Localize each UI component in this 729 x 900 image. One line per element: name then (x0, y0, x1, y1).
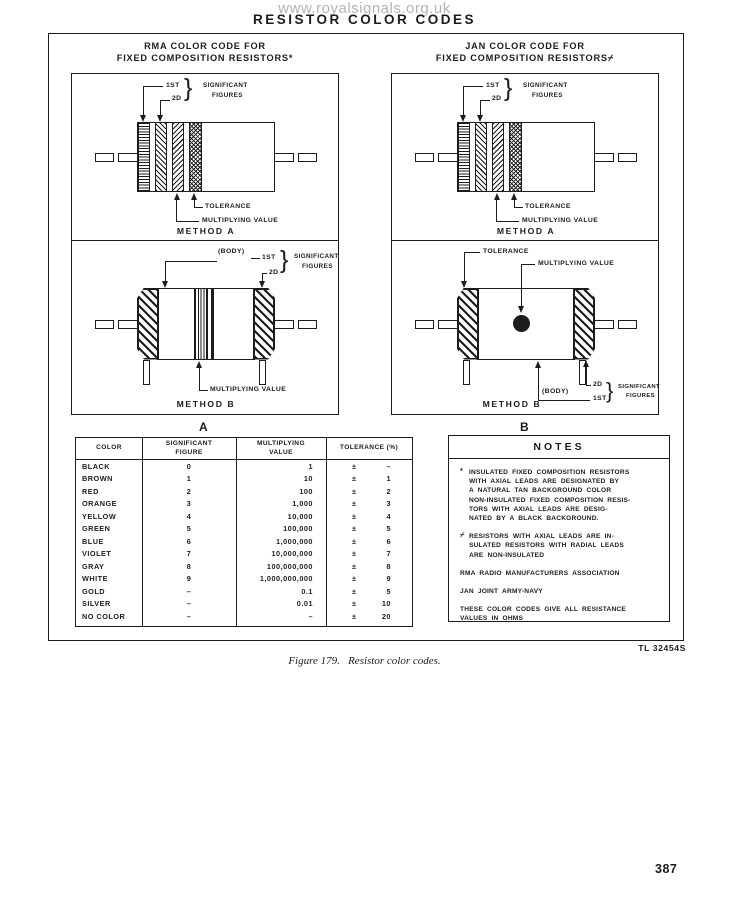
plus-minus-sign: ± (352, 525, 357, 532)
tolerance-value: 8 (380, 563, 391, 570)
cell-multiplier: 0.01 (236, 600, 326, 607)
table-row: VIOLET710,000,000±7 (76, 550, 412, 557)
lead-wire (298, 320, 317, 329)
label-multiplying-value: MULTIPLYING VALUE (538, 261, 614, 268)
cell-figure: 1 (142, 475, 236, 482)
note-line: RESISTORS WITH AXIAL LEADS ARE IN- (469, 532, 663, 541)
lead-wire (274, 153, 294, 162)
plus-minus-sign: ± (352, 563, 357, 570)
cell-figure: – (142, 588, 236, 595)
brace-glyph: } (606, 380, 613, 402)
jan-panel-title: JAN COLOR CODE FOR FIXED COMPOSITION RES… (391, 40, 659, 64)
cell-multiplier: 1,000,000 (236, 538, 326, 545)
arrowhead (460, 115, 466, 122)
label-figures: FIGURES (302, 264, 333, 270)
cell-tolerance: ±5 (326, 525, 412, 532)
lead-wire (438, 320, 458, 329)
leader-line (463, 86, 464, 115)
cap-hatch (575, 290, 593, 358)
method-a-label: METHOD A (456, 227, 596, 236)
tolerance-value: – (380, 463, 391, 470)
cell-figure: 3 (142, 500, 236, 507)
label-tolerance: TOLERANCE (205, 204, 251, 211)
label-significant: SIGNIFICANT (294, 254, 339, 260)
cell-color: GRAY (76, 563, 142, 570)
leader-line (480, 100, 490, 101)
table-row: SILVER–0.01±10 (76, 600, 412, 607)
figure-caption: Figure 179. Resistor color codes. (0, 655, 729, 667)
cell-multiplier: 1,000,000,000 (236, 575, 326, 582)
cell-tolerance: ±1 (326, 475, 412, 482)
plus-minus-sign: ± (352, 613, 357, 620)
arrowhead (518, 306, 524, 313)
label-1st: 1ST (486, 83, 500, 90)
end-cap-left (137, 288, 159, 360)
tolerance-value: 5 (380, 525, 391, 532)
label-figures: FIGURES (212, 93, 243, 99)
label-2d: 2D (492, 96, 502, 103)
band-1st-figure (458, 123, 470, 191)
cell-multiplier: 1,000 (236, 500, 326, 507)
cell-tolerance: ±20 (326, 613, 412, 620)
tolerance-value: 1 (380, 475, 391, 482)
rma-title-line2: FIXED COMPOSITION RESISTORS* (71, 52, 339, 64)
note-line: VALUES IN OHMS (460, 614, 663, 623)
tolerance-value: 9 (380, 575, 391, 582)
cell-multiplier: 100 (236, 488, 326, 495)
cell-figure: 7 (142, 550, 236, 557)
cell-color: NO COLOR (76, 613, 142, 620)
tolerance-value: 4 (380, 513, 391, 520)
cell-multiplier: 100,000 (236, 525, 326, 532)
tolerance-value: 5 (380, 588, 391, 595)
cell-multiplier: 10 (236, 475, 326, 482)
table-row: RED2100±2 (76, 488, 412, 495)
note-line: JAN JOINT ARMY-NAVY (460, 587, 663, 596)
method-a-label: METHOD A (136, 227, 276, 236)
lead-wire (118, 320, 138, 329)
label-figures: FIGURES (532, 93, 563, 99)
lead-wire (95, 320, 114, 329)
note-item: ⌿ RESISTORS WITH AXIAL LEADS ARE IN- SUL… (460, 532, 663, 560)
header-significant-figure: SIGNIFICANT FIGURE (142, 440, 236, 456)
leader-line (143, 86, 144, 115)
cap-hatch (139, 290, 157, 358)
resistor-body (457, 122, 595, 192)
cell-figure: 0 (142, 463, 236, 470)
table-row: BLUE61,000,000±6 (76, 538, 412, 545)
cell-tolerance: ±10 (326, 600, 412, 607)
note-line: TORS WITH AXIAL LEADS ARE DESIG- (469, 505, 663, 514)
leader-line (143, 86, 163, 87)
plus-minus-sign: ± (352, 500, 357, 507)
cell-tolerance: ±7 (326, 550, 412, 557)
plus-minus-sign: ± (352, 575, 357, 582)
cell-multiplier: 10,000,000 (236, 550, 326, 557)
leader-line (538, 366, 539, 401)
lead-wire (415, 153, 434, 162)
note-line: WITH AXIAL LEADS ARE DESIGNATED BY (469, 477, 663, 486)
cell-color: WHITE (76, 575, 142, 582)
band-2d-figure (475, 123, 487, 191)
leader-line (586, 365, 587, 386)
note-line: A NATURAL TAN BACKGROUND COLOR (469, 486, 663, 495)
lead-wire (618, 153, 637, 162)
lead-wire (298, 153, 317, 162)
cap-hatch (255, 290, 273, 358)
band-2d-figure (155, 123, 167, 191)
note-item: JAN JOINT ARMY-NAVY (460, 587, 663, 596)
table-row: NO COLOR––±20 (76, 613, 412, 620)
cell-multiplier: 100,000,000 (236, 563, 326, 570)
note-line: RMA RADIO MANUFACTURERS ASSOCIATION (460, 569, 663, 578)
plus-minus-sign: ± (352, 463, 357, 470)
resistor-body (157, 288, 255, 360)
note-line: INSULATED FIXED COMPOSITION RESISTORS (469, 468, 663, 477)
panel-a-letter: A (199, 420, 208, 434)
table-row: ORANGE31,000±3 (76, 500, 412, 507)
leader-line (521, 264, 522, 306)
lead-wire (95, 153, 114, 162)
arrowhead (162, 281, 168, 288)
label-tolerance: TOLERANCE (525, 204, 571, 211)
cell-figure: 4 (142, 513, 236, 520)
leader-line (496, 221, 519, 222)
lead-wire (594, 320, 614, 329)
header-multiplying-value: MULTIPLYING VALUE (236, 440, 326, 456)
tolerance-value: 7 (380, 550, 391, 557)
plus-minus-sign: ± (352, 538, 357, 545)
cell-tolerance: ±3 (326, 500, 412, 507)
multiplying-value-dot (513, 315, 530, 332)
slash-footnote-marker: ⌿ (460, 531, 464, 540)
end-cap-right (253, 288, 275, 360)
leader-line (160, 100, 161, 115)
color-code-table: COLOR SIGNIFICANT FIGURE MULTIPLYING VAL… (75, 437, 413, 627)
scanned-manual-page: www.royalsignals.org.uk RESISTOR COLOR C… (0, 0, 729, 900)
cell-figure: 2 (142, 488, 236, 495)
leader-line (586, 385, 591, 386)
header-tolerance: TOLERANCE (%) (326, 444, 412, 452)
leader-line (463, 86, 483, 87)
lead-wire (618, 320, 637, 329)
label-significant: SIGNIFICANT (523, 83, 568, 89)
lead-wire (118, 153, 138, 162)
cell-multiplier: 1 (236, 463, 326, 470)
cell-color: BLACK (76, 463, 142, 470)
jan-title-line1: JAN COLOR CODE FOR (391, 40, 659, 52)
cell-color: BLUE (76, 538, 142, 545)
brace-glyph: } (504, 76, 512, 101)
label-multiplying-value: MULTIPLYING VALUE (210, 387, 286, 394)
tolerance-value: 6 (380, 538, 391, 545)
leader-line (521, 264, 535, 265)
tolerance-value: 10 (380, 600, 391, 607)
label-multiplying-value: MULTIPLYING VALUE (202, 218, 278, 225)
leader-line (251, 258, 260, 259)
leader-line (160, 100, 170, 101)
label-1st: 1ST (166, 83, 180, 90)
jan-method-a-diagram: 1ST 2D } SIGNIFICANT FIGURES TOLERANCE M… (391, 73, 659, 241)
cell-color: ORANGE (76, 500, 142, 507)
end-cap-left (457, 288, 479, 360)
brace-glyph: } (184, 76, 192, 101)
leader-line (199, 366, 200, 391)
arrowhead (140, 115, 146, 122)
label-multiplying-value: MULTIPLYING VALUE (522, 218, 598, 225)
leader-line (464, 252, 465, 281)
band-multiplying-value (194, 289, 208, 359)
table-row: GREEN5100,000±5 (76, 525, 412, 532)
note-line: SULATED RESISTORS WITH RADIAL LEADS (469, 541, 663, 550)
table-row: BLACK01±– (76, 463, 412, 470)
arrowhead (259, 281, 265, 288)
label-1st: 1ST (593, 396, 607, 403)
rma-method-a-diagram: 1ST 2D } SIGNIFICANT FIGURES TOLERANCE M… (71, 73, 339, 241)
rma-method-b-diagram: (BODY) 1ST 2D } SIGNIFICANT FIGURES MULT… (71, 240, 339, 415)
leader-line (464, 252, 480, 253)
cell-tolerance: ±5 (326, 588, 412, 595)
band-tolerance (189, 123, 202, 191)
header-line: SIGNIFICANT (142, 440, 236, 448)
label-body: (BODY) (542, 389, 569, 396)
label-body: (BODY) (218, 249, 245, 256)
cell-multiplier: 0.1 (236, 588, 326, 595)
lead-wire (594, 153, 614, 162)
page-title: RESISTOR COLOR CODES (0, 12, 729, 27)
cell-tolerance: ±– (326, 463, 412, 470)
label-significant: SIGNIFICANT (203, 83, 248, 89)
arrowhead (157, 115, 163, 122)
table-row: BROWN110±1 (76, 475, 412, 482)
table-header-row: COLOR SIGNIFICANT FIGURE MULTIPLYING VAL… (76, 438, 412, 460)
note-line: ARE NON-INSULATED (469, 551, 663, 560)
label-tolerance: TOLERANCE (483, 249, 529, 256)
note-item: RMA RADIO MANUFACTURERS ASSOCIATION (460, 569, 663, 578)
jan-method-b-diagram: TOLERANCE MULTIPLYING VALUE (BODY) 1ST 2… (391, 240, 659, 415)
note-item: * INSULATED FIXED COMPOSITION RESISTORS … (460, 468, 663, 523)
note-line: THESE COLOR CODES GIVE ALL RESISTANCE (460, 605, 663, 614)
leader-line (496, 198, 497, 222)
band-tolerance (509, 123, 522, 191)
page-number: 387 (655, 862, 677, 876)
cell-color: GREEN (76, 525, 142, 532)
cell-color: BROWN (76, 475, 142, 482)
cell-figure: – (142, 613, 236, 620)
label-2d: 2D (172, 96, 182, 103)
leader-line (176, 198, 177, 222)
resistor-body (137, 122, 275, 192)
panel-b-letter: B (520, 420, 529, 434)
cell-multiplier: 10,000 (236, 513, 326, 520)
rma-panel-title: RMA COLOR CODE FOR FIXED COMPOSITION RES… (71, 40, 339, 64)
table-row: GOLD–0.1±5 (76, 588, 412, 595)
radial-lead (463, 360, 470, 385)
cell-multiplier: – (236, 613, 326, 620)
lead-wire (274, 320, 294, 329)
tolerance-value: 20 (380, 613, 391, 620)
method-b-label: METHOD B (136, 400, 276, 409)
plus-minus-sign: ± (352, 513, 357, 520)
lead-wire (415, 320, 434, 329)
plus-minus-sign: ± (352, 588, 357, 595)
lead-wire (438, 153, 458, 162)
cell-tolerance: ±4 (326, 513, 412, 520)
leader-line (165, 261, 217, 262)
cell-color: GOLD (76, 588, 142, 595)
header-line: VALUE (236, 449, 326, 457)
label-figures: FIGURES (626, 394, 655, 400)
note-item: THESE COLOR CODES GIVE ALL RESISTANCE VA… (460, 605, 663, 623)
cell-figure: 9 (142, 575, 236, 582)
note-line: NON-INSULATED FIXED COMPOSITION RESIS- (469, 496, 663, 505)
leader-line (194, 207, 203, 208)
brace-glyph: } (280, 248, 288, 273)
arrowhead (461, 281, 467, 288)
table-body: BLACK01±– BROWN110±1 RED2100±2 ORANGE31,… (76, 461, 412, 624)
cell-figure: – (142, 600, 236, 607)
jan-title-line2: FIXED COMPOSITION RESISTORS⌿ (391, 52, 659, 64)
plus-minus-sign: ± (352, 475, 357, 482)
plus-minus-sign: ± (352, 488, 357, 495)
cap-hatch (459, 290, 477, 358)
header-line: MULTIPLYING (236, 440, 326, 448)
cell-color: VIOLET (76, 550, 142, 557)
cell-tolerance: ±8 (326, 563, 412, 570)
table-row: YELLOW410,000±4 (76, 513, 412, 520)
rma-title-line1: RMA COLOR CODE FOR (71, 40, 339, 52)
cell-color: SILVER (76, 600, 142, 607)
cell-color: YELLOW (76, 513, 142, 520)
cell-tolerance: ±2 (326, 488, 412, 495)
asterisk-footnote-marker: * (460, 467, 463, 476)
drawing-number: TL 32454S (560, 643, 686, 653)
header-line: FIGURE (142, 449, 236, 457)
cell-color: RED (76, 488, 142, 495)
plus-minus-sign: ± (352, 550, 357, 557)
band-multiplying-value (172, 123, 184, 191)
leader-line (199, 390, 208, 391)
table-row: GRAY8100,000,000±8 (76, 563, 412, 570)
label-1st: 1ST (262, 255, 276, 262)
note-line: NATED BY A BLACK BACKGROUND. (469, 514, 663, 523)
radial-lead (143, 360, 150, 385)
leader-line (480, 100, 481, 115)
band-multiplying-value (492, 123, 504, 191)
leader-line (514, 207, 523, 208)
band-stripe (211, 289, 214, 359)
cell-figure: 5 (142, 525, 236, 532)
cell-figure: 8 (142, 563, 236, 570)
leader-line (176, 221, 199, 222)
end-cap-right (573, 288, 595, 360)
table-row: WHITE91,000,000,000±9 (76, 575, 412, 582)
notes-box: NOTES * INSULATED FIXED COMPOSITION RESI… (448, 435, 670, 622)
tolerance-value: 3 (380, 500, 391, 507)
label-significant: SIGNIFICANT (618, 385, 660, 391)
arrowhead (477, 115, 483, 122)
leader-line (165, 261, 166, 281)
plus-minus-sign: ± (352, 600, 357, 607)
label-2d: 2D (269, 270, 279, 277)
notes-body: * INSULATED FIXED COMPOSITION RESISTORS … (449, 459, 669, 624)
radial-lead (259, 360, 266, 385)
cell-tolerance: ±6 (326, 538, 412, 545)
method-b-label: METHOD B (442, 400, 582, 409)
cell-figure: 6 (142, 538, 236, 545)
header-color: COLOR (76, 444, 142, 452)
label-2d: 2D (593, 382, 603, 389)
band-1st-figure (138, 123, 150, 191)
cell-tolerance: ±9 (326, 575, 412, 582)
notes-title: NOTES (449, 436, 669, 459)
tolerance-value: 2 (380, 488, 391, 495)
